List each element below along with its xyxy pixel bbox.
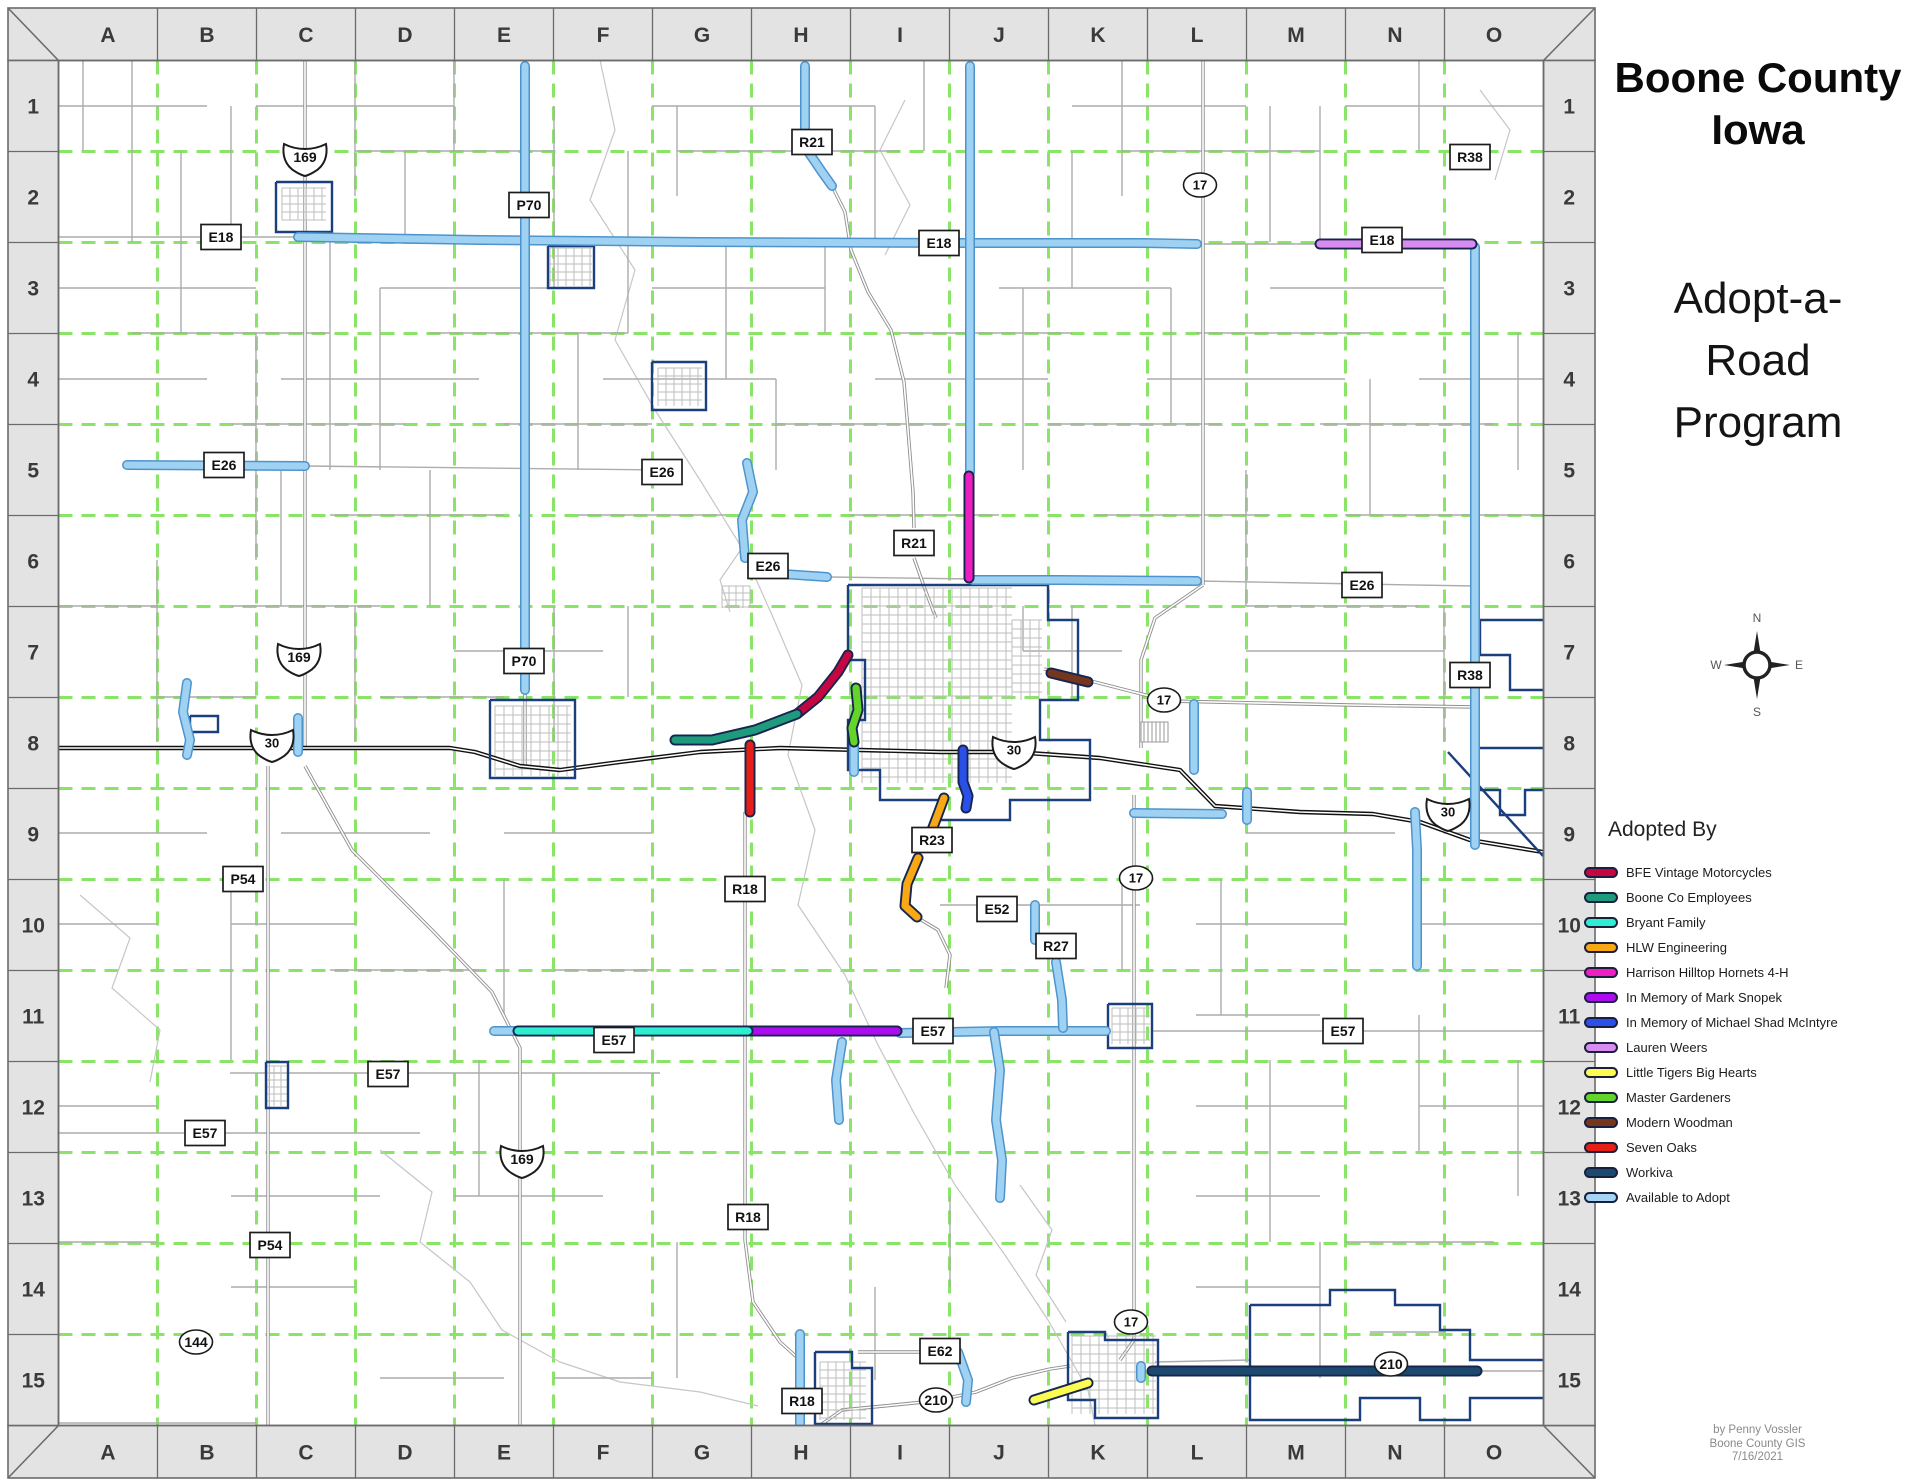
road-label-e57: E57	[1323, 1019, 1363, 1044]
credit: by Penny Vossler Boone County GIS 7/16/2…	[1640, 1424, 1875, 1465]
road-label-e26: E26	[748, 554, 788, 579]
svg-text:E26: E26	[1350, 577, 1375, 593]
svg-text:144: 144	[184, 1334, 208, 1350]
legend-item-label: Harrison Hilltop Hornets 4-H	[1626, 965, 1789, 980]
svg-text:J: J	[993, 24, 1005, 47]
svg-text:F: F	[597, 1441, 610, 1464]
road-label-210: 210	[1375, 1352, 1408, 1376]
svg-text:R27: R27	[1043, 938, 1069, 954]
svg-text:E: E	[497, 24, 511, 47]
adopted-road	[963, 750, 968, 808]
svg-text:13: 13	[1558, 1188, 1581, 1211]
svg-text:F: F	[597, 24, 610, 47]
map-subtitle-line2: Road	[1600, 330, 1916, 392]
legend-item-label: Lauren Weers	[1626, 1040, 1707, 1055]
credit-author: by Penny Vossler	[1640, 1424, 1875, 1438]
road-label-p70: P70	[504, 649, 544, 674]
svg-text:K: K	[1090, 1441, 1105, 1464]
legend-item: Boone Co Employees	[1596, 885, 1920, 910]
legend-item-label: In Memory of Michael Shad McIntyre	[1626, 1015, 1838, 1030]
svg-text:R23: R23	[919, 832, 945, 848]
svg-text:P54: P54	[231, 871, 256, 887]
svg-text:12: 12	[22, 1097, 45, 1120]
svg-text:6: 6	[1563, 551, 1575, 574]
svg-text:B: B	[199, 1441, 214, 1464]
svg-text:11: 11	[22, 1006, 45, 1029]
road-label-r38: R38	[1450, 145, 1490, 170]
legend-item: Available to Adopt	[1596, 1185, 1920, 1210]
svg-text:2: 2	[1563, 187, 1575, 210]
svg-text:P70: P70	[517, 197, 542, 213]
legend-swatch-icon	[1584, 1167, 1618, 1178]
svg-text:169: 169	[287, 649, 311, 665]
svg-text:R18: R18	[789, 1393, 815, 1409]
svg-text:C: C	[298, 24, 313, 47]
legend-item-label: Seven Oaks	[1626, 1140, 1697, 1155]
svg-text:I: I	[897, 24, 903, 47]
map-title-line1: Boone County	[1600, 52, 1916, 104]
legend-item-label: Boone Co Employees	[1626, 890, 1752, 905]
svg-text:E26: E26	[650, 464, 675, 480]
road-label-e26: E26	[642, 460, 682, 485]
road-label-210: 210	[920, 1388, 953, 1412]
svg-text:P54: P54	[258, 1237, 283, 1253]
svg-text:D: D	[397, 24, 412, 47]
svg-text:W: W	[1710, 658, 1722, 672]
map-subtitle-line1: Adopt-a-	[1600, 268, 1916, 330]
adopted-road	[852, 688, 858, 742]
svg-text:12: 12	[1558, 1097, 1581, 1120]
svg-text:5: 5	[27, 460, 39, 483]
legend-swatch-icon	[1584, 1117, 1618, 1128]
svg-text:17: 17	[1124, 1315, 1138, 1330]
legend-item-label: BFE Vintage Motorcycles	[1626, 865, 1772, 880]
svg-text:A: A	[100, 1441, 115, 1464]
svg-text:E18: E18	[927, 235, 952, 251]
svg-text:M: M	[1287, 1441, 1305, 1464]
legend-item: Lauren Weers	[1596, 1035, 1920, 1060]
svg-text:E26: E26	[212, 457, 237, 473]
legend-swatch-icon	[1584, 1142, 1618, 1153]
svg-text:M: M	[1287, 24, 1305, 47]
legend-item-label: HLW Engineering	[1626, 940, 1727, 955]
legend-item: In Memory of Mark Snopek	[1596, 985, 1920, 1010]
svg-text:K: K	[1090, 24, 1105, 47]
svg-text:R21: R21	[901, 535, 927, 551]
road-label-e52: E52	[977, 897, 1017, 922]
svg-text:E26: E26	[756, 558, 781, 574]
legend-item-label: Modern Woodman	[1626, 1115, 1733, 1130]
legend-item-label: In Memory of Mark Snopek	[1626, 990, 1782, 1005]
svg-text:3: 3	[1563, 278, 1575, 301]
legend-swatch-icon	[1584, 892, 1618, 903]
svg-text:2: 2	[27, 187, 39, 210]
svg-text:7: 7	[27, 642, 39, 665]
svg-text:B: B	[199, 24, 214, 47]
side-panel	[1596, 0, 1920, 1482]
road-label-e26: E26	[1342, 573, 1382, 598]
svg-text:R21: R21	[799, 134, 825, 150]
svg-text:9: 9	[27, 824, 39, 847]
svg-text:D: D	[397, 1441, 412, 1464]
svg-text:E57: E57	[193, 1125, 218, 1141]
road-label-e26: E26	[204, 453, 244, 478]
svg-text:1: 1	[27, 96, 39, 119]
svg-text:H: H	[793, 1441, 808, 1464]
svg-text:10: 10	[22, 915, 45, 938]
road-label-e57: E57	[594, 1028, 634, 1053]
svg-text:17: 17	[1157, 693, 1171, 708]
legend-swatch-icon	[1584, 992, 1618, 1003]
legend-item: HLW Engineering	[1596, 935, 1920, 960]
legend-swatch-icon	[1584, 967, 1618, 978]
svg-text:15: 15	[1558, 1370, 1582, 1393]
svg-text:O: O	[1486, 1441, 1502, 1464]
svg-text:E18: E18	[209, 229, 234, 245]
road-label-e57: E57	[368, 1062, 408, 1087]
road-label-e18: E18	[919, 231, 959, 256]
legend-item: Seven Oaks	[1596, 1135, 1920, 1160]
svg-text:H: H	[793, 24, 808, 47]
legend-item: Little Tigers Big Hearts	[1596, 1060, 1920, 1085]
svg-text:J: J	[993, 1441, 1005, 1464]
map-title-line2: Iowa	[1600, 104, 1916, 156]
svg-text:R18: R18	[732, 881, 758, 897]
legend-swatch-icon	[1584, 867, 1618, 878]
svg-text:4: 4	[1563, 369, 1575, 392]
svg-text:C: C	[298, 1441, 313, 1464]
svg-text:L: L	[1191, 1441, 1204, 1464]
legend-item: Modern Woodman	[1596, 1110, 1920, 1135]
svg-text:4: 4	[27, 369, 39, 392]
road-label-17: 17	[1184, 173, 1217, 197]
credit-date: 7/16/2021	[1640, 1451, 1875, 1465]
road-label-e57: E57	[185, 1121, 225, 1146]
road-label-r18: R18	[728, 1205, 768, 1230]
svg-text:E62: E62	[928, 1343, 953, 1359]
svg-text:E: E	[497, 1441, 511, 1464]
svg-text:R18: R18	[735, 1209, 761, 1225]
svg-text:10: 10	[1558, 915, 1581, 938]
svg-text:15: 15	[22, 1370, 46, 1393]
legend-item: BFE Vintage Motorcycles	[1596, 860, 1920, 885]
road-label-e62: E62	[920, 1339, 960, 1364]
road-label-144: 144	[180, 1330, 213, 1354]
page: 169169169303030E18E18E18P70P70R21R21R38R…	[0, 0, 1920, 1482]
svg-text:E52: E52	[985, 901, 1010, 917]
svg-text:1: 1	[1563, 96, 1575, 119]
road-label-p54: P54	[223, 867, 263, 892]
road-label-e18: E18	[201, 225, 241, 250]
svg-text:169: 169	[510, 1151, 534, 1167]
legend-item-label: Available to Adopt	[1626, 1190, 1730, 1205]
legend-swatch-icon	[1584, 1042, 1618, 1053]
svg-text:30: 30	[1441, 805, 1455, 820]
road-label-r23: R23	[912, 828, 952, 853]
map-subtitle: Adopt-a- Road Program	[1600, 268, 1916, 454]
svg-text:E18: E18	[1370, 232, 1395, 248]
svg-text:169: 169	[293, 149, 317, 165]
road-label-17: 17	[1120, 866, 1153, 890]
svg-text:N: N	[1753, 611, 1762, 625]
svg-text:210: 210	[924, 1392, 948, 1408]
legend-item: Harrison Hilltop Hornets 4-H	[1596, 960, 1920, 985]
svg-text:R38: R38	[1457, 149, 1483, 165]
road-label-e57: E57	[913, 1019, 953, 1044]
road-label-17: 17	[1115, 1310, 1148, 1334]
legend-item-label: Workiva	[1626, 1165, 1673, 1180]
svg-text:17: 17	[1193, 178, 1207, 193]
svg-text:N: N	[1387, 24, 1402, 47]
road-label-r18: R18	[725, 877, 765, 902]
legend-title: Adopted By	[1608, 818, 1920, 842]
legend-swatch-icon	[1584, 1067, 1618, 1078]
svg-text:11: 11	[1558, 1006, 1581, 1029]
svg-text:8: 8	[1563, 733, 1575, 756]
svg-text:I: I	[897, 1441, 903, 1464]
legend-item-label: Master Gardeners	[1626, 1090, 1731, 1105]
road-label-r18: R18	[782, 1389, 822, 1414]
road-label-17: 17	[1148, 688, 1181, 712]
road-label-r21: R21	[792, 130, 832, 155]
legend-swatch-icon	[1584, 1192, 1618, 1203]
svg-text:P70: P70	[512, 653, 537, 669]
legend-item-label: Little Tigers Big Hearts	[1626, 1065, 1757, 1080]
svg-text:7: 7	[1563, 642, 1575, 665]
road-label-r38: R38	[1450, 663, 1490, 688]
county-map: 169169169303030E18E18E18P70P70R21R21R38R…	[0, 0, 1596, 1482]
svg-text:L: L	[1191, 24, 1204, 47]
svg-text:13: 13	[22, 1188, 45, 1211]
svg-text:E57: E57	[376, 1066, 401, 1082]
svg-text:5: 5	[1563, 460, 1575, 483]
svg-text:R38: R38	[1457, 667, 1483, 683]
legend-swatch-icon	[1584, 1017, 1618, 1028]
compass-rose-icon: N S E W	[1700, 605, 1815, 725]
svg-text:30: 30	[265, 736, 279, 751]
svg-text:8: 8	[27, 733, 39, 756]
svg-text:17: 17	[1129, 871, 1143, 886]
legend-swatch-icon	[1584, 942, 1618, 953]
road-label-p54: P54	[250, 1233, 290, 1258]
rail-yard	[1141, 722, 1168, 742]
svg-text:O: O	[1486, 24, 1502, 47]
svg-text:E57: E57	[1331, 1023, 1356, 1039]
svg-text:G: G	[694, 1441, 710, 1464]
svg-text:210: 210	[1379, 1356, 1403, 1372]
road-label-p70: P70	[509, 193, 549, 218]
legend-item-label: Bryant Family	[1626, 915, 1705, 930]
legend-item: Master Gardeners	[1596, 1085, 1920, 1110]
svg-text:A: A	[100, 24, 115, 47]
svg-text:9: 9	[1563, 824, 1575, 847]
map-title: Boone County Iowa	[1600, 52, 1916, 156]
legend-item: Workiva	[1596, 1160, 1920, 1185]
legend-items: BFE Vintage MotorcyclesBoone Co Employee…	[1596, 860, 1920, 1210]
svg-text:N: N	[1387, 1441, 1402, 1464]
svg-text:14: 14	[1558, 1279, 1582, 1302]
credit-org: Boone County GIS	[1640, 1438, 1875, 1452]
legend-swatch-icon	[1584, 1092, 1618, 1103]
road-label-e18: E18	[1362, 228, 1402, 253]
svg-text:14: 14	[22, 1279, 46, 1302]
legend: Adopted By BFE Vintage MotorcyclesBoone …	[1596, 818, 1920, 1210]
road-label-r27: R27	[1036, 934, 1076, 959]
legend-item: In Memory of Michael Shad McIntyre	[1596, 1010, 1920, 1035]
road-label-r21: R21	[894, 531, 934, 556]
map-subtitle-line3: Program	[1600, 392, 1916, 454]
svg-text:E57: E57	[921, 1023, 946, 1039]
legend-item: Bryant Family	[1596, 910, 1920, 935]
svg-text:30: 30	[1007, 743, 1021, 758]
svg-text:G: G	[694, 24, 710, 47]
legend-swatch-icon	[1584, 917, 1618, 928]
svg-text:E57: E57	[602, 1032, 627, 1048]
svg-text:6: 6	[27, 551, 39, 574]
svg-text:3: 3	[27, 278, 39, 301]
svg-text:E: E	[1795, 658, 1803, 672]
svg-text:S: S	[1753, 705, 1761, 719]
